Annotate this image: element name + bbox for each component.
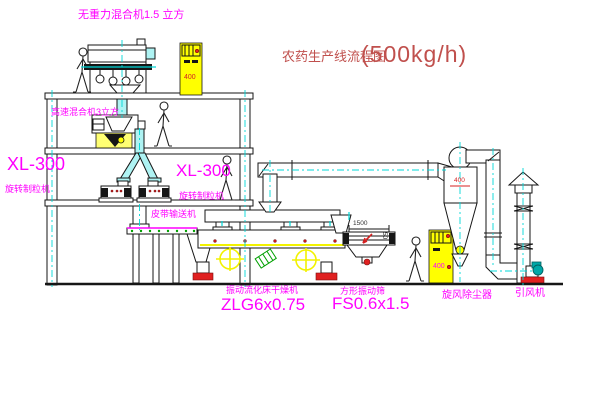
control-cabinet-bottom: [429, 230, 453, 283]
page-title-capacity: (500kg/h): [361, 43, 467, 66]
gravity-mixer-label: 无重力混合机1.5 立方: [78, 10, 184, 21]
granulator-mid-name: 旋转制粒机: [179, 192, 224, 201]
fluid-bed-dryer: [187, 210, 345, 280]
cabinet-top-tag: 400: [184, 74, 196, 81]
dryer-name-label: 振动流化床干燥机: [226, 286, 298, 295]
granulator-mid-model: XL-300: [176, 162, 231, 179]
cyclone-inlet-dim: 400: [454, 178, 465, 185]
control-cabinet-top: [180, 43, 202, 95]
worker-ground: [406, 237, 424, 281]
dryer-model-label: ZLG6x0.75: [221, 296, 305, 313]
exhaust-duct: [258, 160, 452, 212]
cyclone-label: 旋风除尘器: [442, 291, 492, 301]
belt-conveyor-label: 皮带输送机: [151, 210, 196, 219]
fan-label: 引风机: [515, 289, 545, 299]
granulator-left-model: XL-300: [7, 155, 65, 173]
dryer-motor: [255, 249, 276, 268]
high-speed-mixer-label: 高速混合机3立方: [51, 108, 119, 117]
vibrating-screen: [343, 225, 395, 265]
granulator-left-name: 旋转制粒机: [5, 185, 50, 194]
rotary-granulator-mid: [137, 181, 171, 202]
cad-process-flow-diagram: 无重力混合机1.5 立方 农药生产线流程图 (500kg/h) 高速混合机3立方…: [0, 0, 600, 403]
screen-model-label: FS0.6x1.5: [332, 295, 410, 312]
screen-length-dim: 1500: [353, 221, 367, 228]
belt-conveyor: [127, 228, 197, 283]
rotary-granulator-left: [99, 181, 133, 202]
cabinet-bottom-tag: 400: [433, 263, 445, 270]
gravity-free-mixer: [81, 39, 156, 93]
worker-second-floor: [154, 102, 172, 146]
screen-height-dim: 50: [381, 232, 388, 239]
